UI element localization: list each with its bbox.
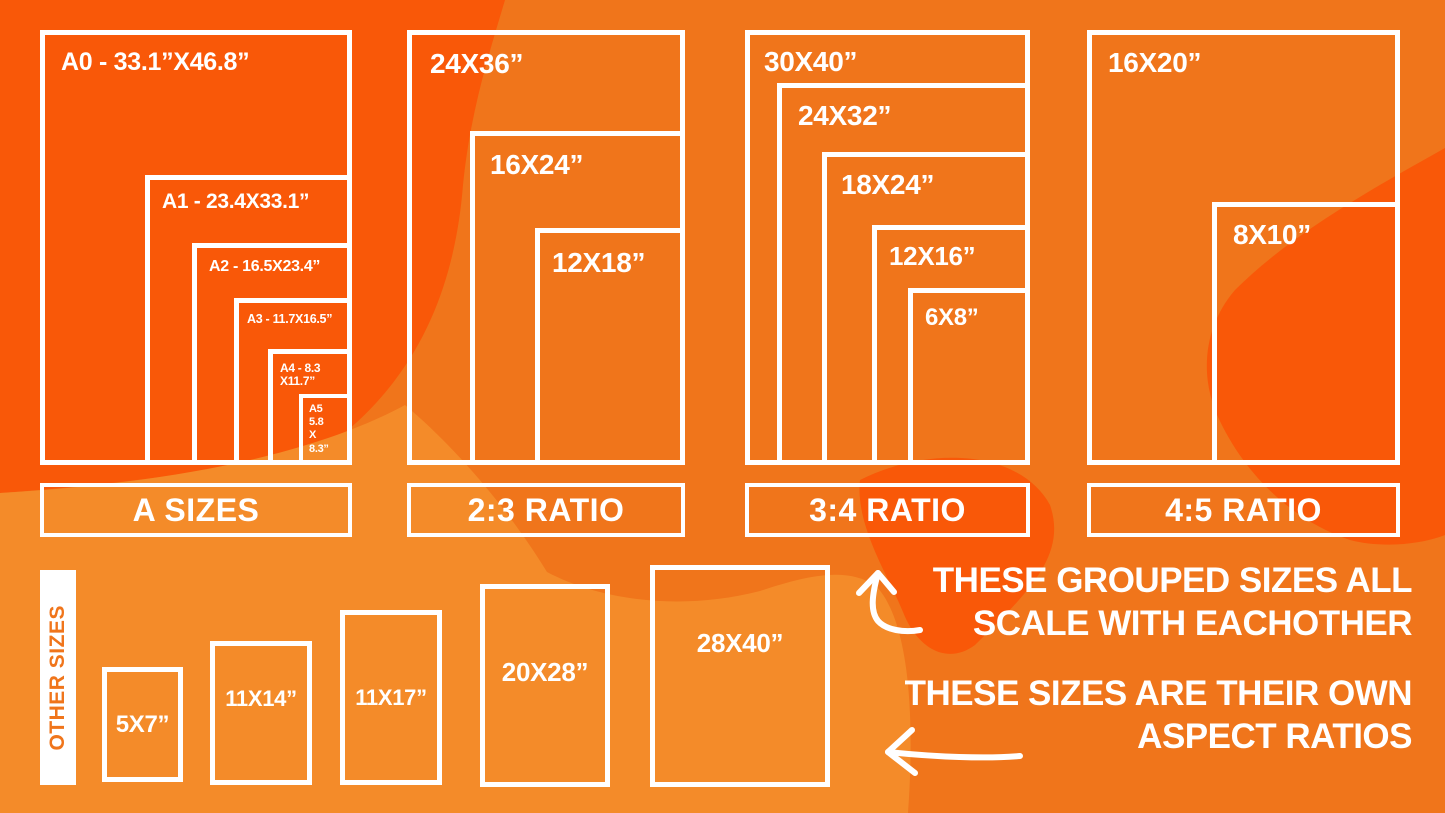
ratio-bar-4-5-label: 4:5 RATIO (1165, 492, 1322, 529)
size-box-a4-label: A4 - 8.3 X11.7” (280, 362, 320, 389)
size-box-24x36-label: 24X36” (430, 48, 523, 79)
other-sizes-label: OTHER SIZES (46, 605, 70, 751)
ratio-bar-a-sizes: A SIZES (40, 483, 352, 537)
size-box-11x14-label: 11X14” (225, 686, 297, 780)
size-box-12x18: 12X18” (535, 228, 685, 465)
size-box-a3-label: A3 - 11.7X16.5” (247, 312, 332, 326)
size-box-12x18-label: 12X18” (552, 247, 645, 278)
size-box-11x14: 11X14” (210, 641, 312, 785)
size-box-12x16-label: 12X16” (889, 242, 975, 271)
size-box-16x24-label: 16X24” (490, 149, 583, 180)
ratio-bar-3-4: 3:4 RATIO (745, 483, 1030, 537)
size-box-a5: A5 5.8 X 8.3” (299, 394, 352, 465)
ratio-bar-2-3-label: 2:3 RATIO (468, 492, 625, 529)
size-box-5x7: 5X7” (102, 667, 183, 782)
size-box-28x40: 28X40” (650, 565, 830, 787)
size-box-a0-label: A0 - 33.1”X46.8” (61, 48, 249, 76)
size-box-11x17: 11X17” (340, 610, 442, 785)
annotation-grouped-text: THESE GROUPED SIZES ALL SCALE WITH EACHO… (872, 560, 1412, 645)
size-box-8x10-label: 8X10” (1233, 219, 1311, 250)
size-box-a2-label: A2 - 16.5X23.4” (209, 258, 320, 276)
size-box-a5-label: A5 5.8 X 8.3” (309, 403, 329, 456)
size-box-28x40-label: 28X40” (697, 628, 783, 782)
size-box-20x28: 20X28” (480, 584, 610, 787)
size-box-a1-label: A1 - 23.4X33.1” (162, 190, 309, 214)
size-box-16x20-label: 16X20” (1108, 47, 1201, 78)
size-box-20x28-label: 20X28” (502, 657, 588, 782)
ratio-bar-4-5: 4:5 RATIO (1087, 483, 1400, 537)
size-box-18x24-label: 18X24” (841, 169, 934, 200)
size-box-8x10: 8X10” (1212, 202, 1400, 465)
size-box-6x8: 6X8” (908, 288, 1030, 465)
ratio-bar-3-4-label: 3:4 RATIO (809, 492, 966, 529)
size-box-5x7-label: 5X7” (116, 711, 170, 739)
size-box-30x40-label: 30X40” (764, 46, 857, 77)
annotation-own-text: THESE SIZES ARE THEIR OWN ASPECT RATIOS (872, 673, 1412, 758)
size-box-24x32-label: 24X32” (798, 100, 891, 131)
size-box-6x8-label: 6X8” (925, 305, 979, 332)
ratio-bar-a-sizes-label: A SIZES (133, 492, 260, 529)
other-sizes-bar: OTHER SIZES (40, 570, 76, 785)
ratio-bar-2-3: 2:3 RATIO (407, 483, 685, 537)
size-box-11x17-label: 11X17” (355, 685, 427, 711)
